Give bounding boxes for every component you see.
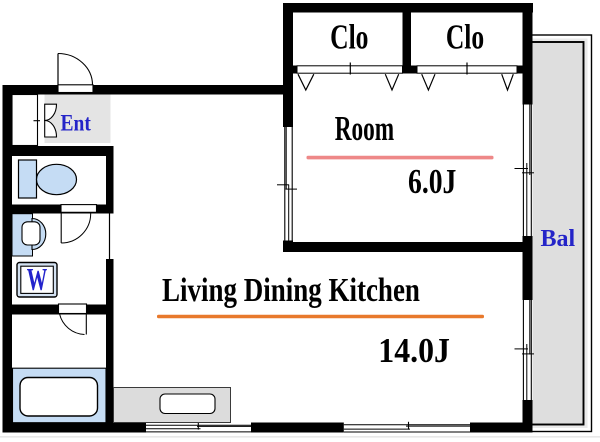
svg-text:Bal: Bal bbox=[541, 226, 576, 252]
svg-text:Living Dining Kitchen: Living Dining Kitchen bbox=[162, 271, 420, 309]
svg-text:6.0J: 6.0J bbox=[408, 162, 456, 201]
svg-text:Clo: Clo bbox=[446, 18, 484, 57]
svg-text:W: W bbox=[27, 261, 48, 297]
svg-text:Clo: Clo bbox=[330, 18, 368, 57]
svg-text:Ent: Ent bbox=[61, 110, 92, 136]
svg-text:14.0J: 14.0J bbox=[378, 332, 450, 371]
svg-text:Room: Room bbox=[335, 111, 395, 149]
